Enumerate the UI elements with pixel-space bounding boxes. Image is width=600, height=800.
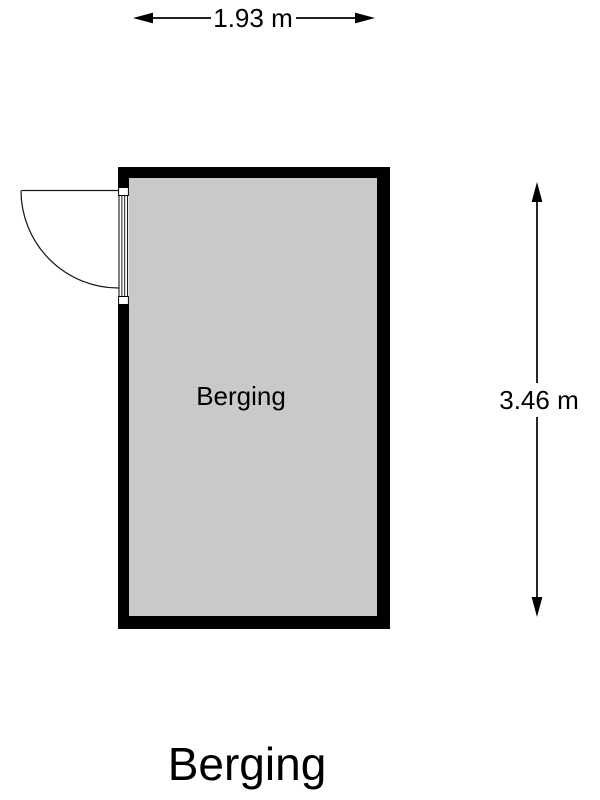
plan-title: Berging (168, 738, 327, 790)
door-swing-arc (21, 191, 119, 289)
floorplan-page: 1.93 m Berging 3.46 m Bergi (0, 0, 600, 800)
arrowhead-up-icon (532, 182, 543, 202)
height-dimension: 3.46 m (499, 182, 579, 617)
width-dimension: 1.93 m (133, 3, 375, 33)
door (21, 187, 129, 305)
height-dimension-label: 3.46 m (499, 385, 579, 415)
floorplan-canvas: 1.93 m Berging 3.46 m Bergi (0, 0, 600, 800)
width-dimension-label: 1.93 m (213, 3, 293, 33)
door-jamb-bottom (119, 297, 129, 305)
room-label: Berging (196, 381, 286, 411)
room: Berging (118, 167, 390, 629)
arrowhead-right-icon (355, 13, 375, 24)
door-panel (119, 196, 128, 297)
arrowhead-down-icon (532, 597, 543, 617)
door-jamb-top (119, 188, 129, 196)
arrowhead-left-icon (133, 13, 153, 24)
